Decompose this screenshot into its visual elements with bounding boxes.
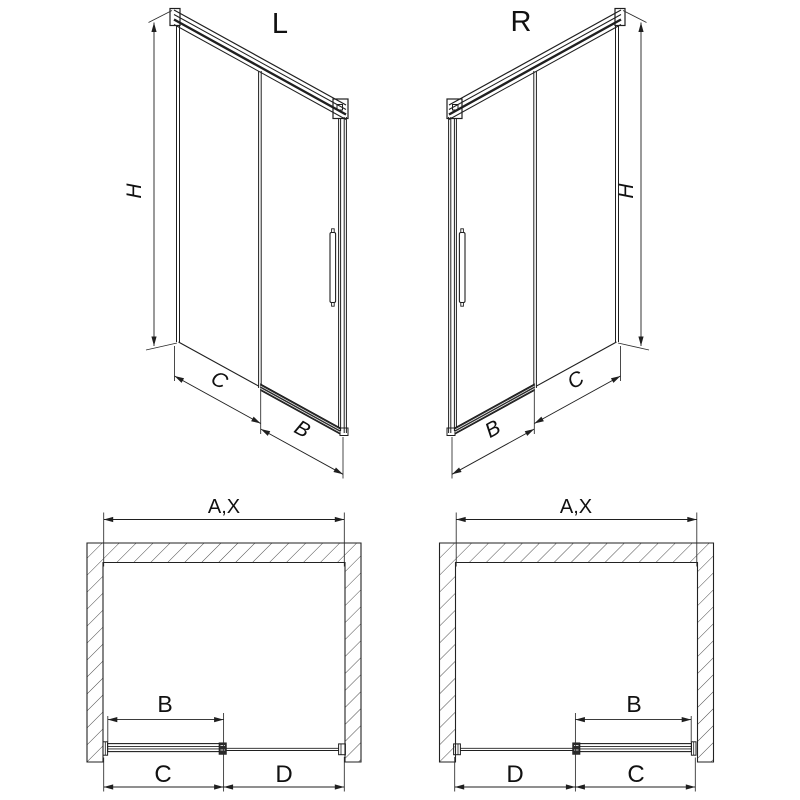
plan-left-b-label: B [157, 691, 172, 717]
plan-right-b-label: B [626, 691, 641, 717]
plan-view-right-door [454, 713, 696, 792]
plan-view-right-walls [440, 513, 714, 763]
iso-left-b-label: B [290, 416, 313, 443]
plan-left-opening-width-label: A,X [208, 496, 240, 518]
plan-left-d-label: D [275, 761, 292, 788]
plan-right-c-label: C [627, 761, 644, 788]
iso-left-height-label: H [123, 183, 146, 199]
plan-right-d-label: D [506, 761, 523, 788]
plan-view-left-door [103, 713, 345, 792]
diagram-canvas: L H C B R H C B A,X B C D A,X B D C [0, 0, 800, 800]
plan-left-c-label: C [154, 761, 171, 788]
plan-right-opening-width-label: A,X [560, 496, 592, 518]
iso-view-left [146, 9, 348, 479]
iso-left-c-label: C [207, 367, 232, 395]
iso-right-title: R [511, 6, 532, 38]
iso-view-right [447, 9, 649, 479]
shower-door-technical-drawing: L H C B R H C B A,X B C D A,X B D C [0, 0, 800, 800]
iso-left-title: L [272, 8, 288, 40]
iso-right-height-label: H [615, 183, 638, 199]
iso-right-c-label: C [564, 366, 589, 394]
iso-right-b-label: B [481, 416, 504, 443]
